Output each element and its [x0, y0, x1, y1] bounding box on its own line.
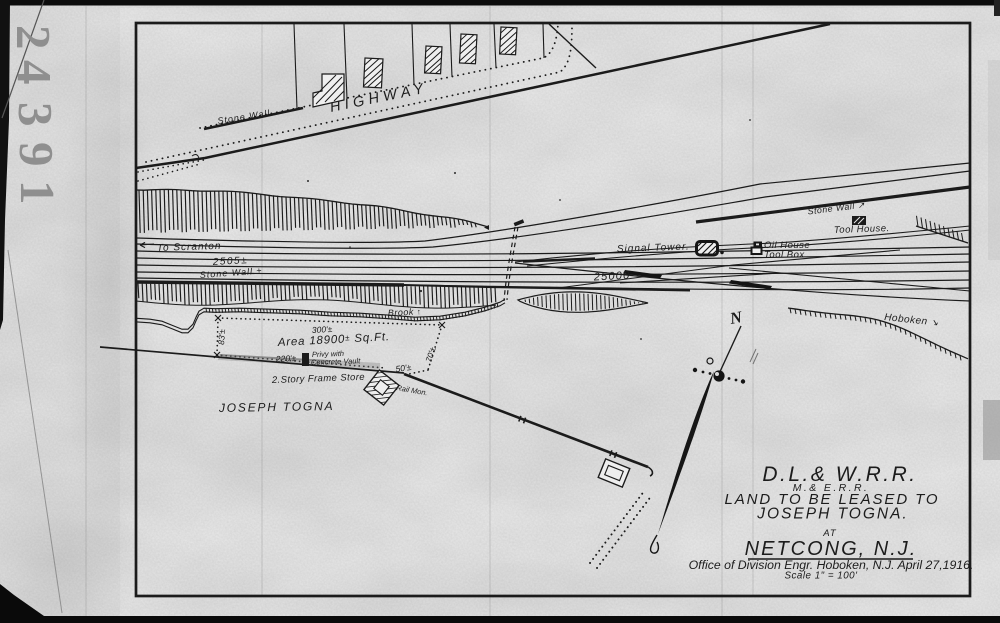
svg-text:25000: 25000	[593, 270, 631, 284]
svg-text:3: 3	[8, 102, 63, 127]
svg-text:9: 9	[9, 142, 64, 167]
svg-text:NETCONG, N.J.: NETCONG, N.J.	[745, 538, 918, 560]
svg-text:Brook ↑: Brook ↑	[388, 306, 422, 318]
svg-text:300'±: 300'±	[312, 324, 333, 335]
svg-text:Tool Box: Tool Box	[764, 250, 805, 261]
svg-text:4: 4	[7, 60, 62, 85]
svg-text:1: 1	[10, 180, 65, 205]
svg-text:83'±: 83'±	[216, 328, 227, 345]
svg-text:Tool House.: Tool House.	[834, 223, 890, 236]
svg-text:Scale 1" = 100': Scale 1" = 100'	[784, 571, 858, 582]
svg-text:JOSEPH TOGNA: JOSEPH TOGNA	[218, 399, 335, 415]
svg-text:2: 2	[6, 25, 61, 50]
svg-text:JOSEPH TOGNA.: JOSEPH TOGNA.	[756, 506, 908, 523]
